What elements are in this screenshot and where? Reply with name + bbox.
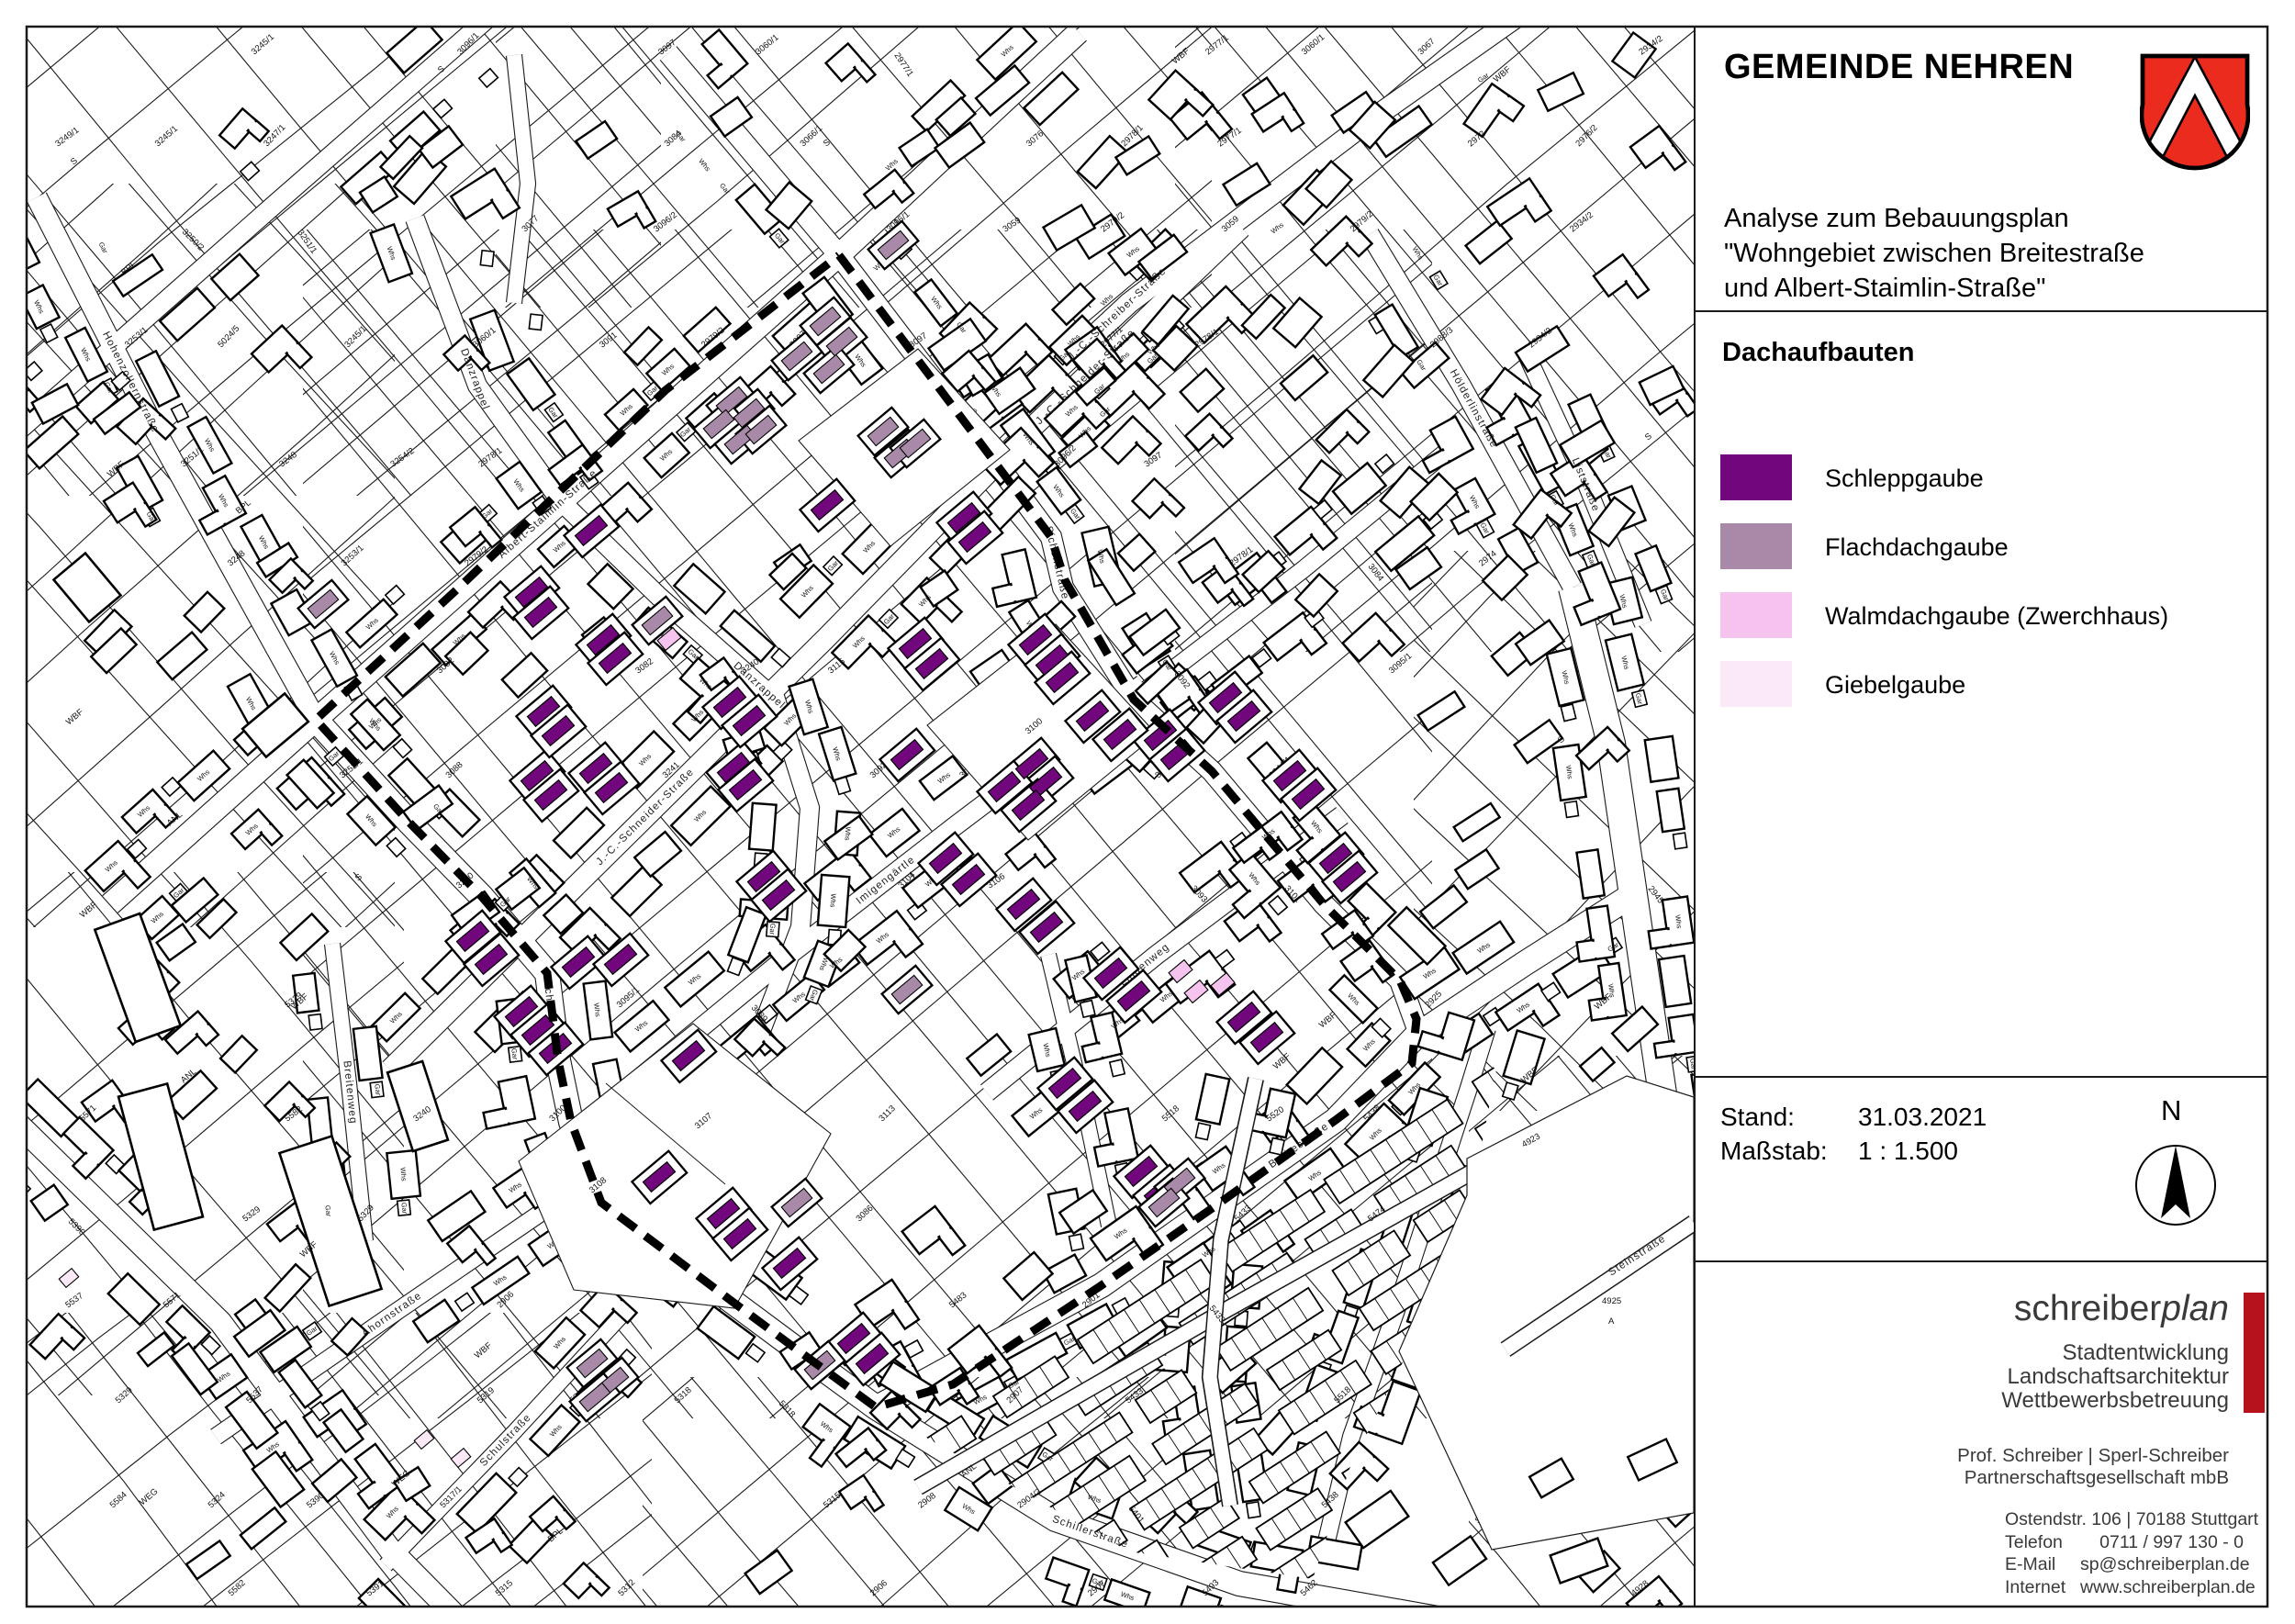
svg-text:Whs: Whs <box>828 893 837 908</box>
svg-text:3245/1: 3245/1 <box>342 324 368 350</box>
svg-text:Whs: Whs <box>398 1167 409 1182</box>
svg-text:Gar: Gar <box>768 923 778 935</box>
svg-text:3245/1: 3245/1 <box>153 124 180 149</box>
svg-text:Gar: Gar <box>373 1083 383 1096</box>
svg-text:3095/1: 3095/1 <box>615 985 642 1010</box>
svg-text:A: A <box>1608 1316 1615 1327</box>
svg-text:S: S <box>822 138 833 150</box>
svg-text:3113: 3113 <box>877 1103 897 1124</box>
svg-text:3059: 3059 <box>1002 216 1024 235</box>
svg-text:Gar: Gar <box>97 241 110 255</box>
svg-text:5312: 5312 <box>616 1577 637 1598</box>
svg-text:WBF: WBF <box>1271 1051 1293 1071</box>
svg-text:3250/2: 3250/2 <box>180 227 206 252</box>
svg-text:3067: 3067 <box>1416 37 1438 57</box>
svg-text:Whs: Whs <box>1270 220 1286 235</box>
svg-text:3091: 3091 <box>598 330 619 351</box>
svg-text:3093: 3093 <box>1189 884 1209 905</box>
svg-text:WBF: WBF <box>64 707 85 727</box>
svg-text:S: S <box>1556 734 1567 746</box>
svg-text:Whs: Whs <box>592 1002 602 1017</box>
svg-text:2974: 2974 <box>1477 549 1498 569</box>
svg-text:5584: 5584 <box>108 1490 129 1510</box>
svg-text:3253/1: 3253/1 <box>340 543 366 569</box>
svg-text:5329: 5329 <box>241 1204 263 1224</box>
svg-text:2978/1: 2978/1 <box>476 445 504 469</box>
svg-text:S: S <box>69 156 80 168</box>
svg-text:5582: 5582 <box>227 1578 248 1598</box>
svg-text:Whs: Whs <box>1719 1241 1729 1256</box>
svg-text:5315: 5315 <box>494 1578 515 1598</box>
svg-text:3088: 3088 <box>444 760 465 780</box>
svg-text:Whs: Whs <box>1411 245 1426 262</box>
svg-text:2977/1: 2977/1 <box>1203 33 1231 58</box>
svg-text:5024/5: 5024/5 <box>216 324 241 351</box>
svg-text:WBF: WBF <box>1317 1010 1338 1030</box>
svg-text:5318: 5318 <box>777 1399 797 1420</box>
svg-text:3251/1: 3251/1 <box>296 228 319 255</box>
svg-text:Whs: Whs <box>697 157 712 173</box>
svg-text:WBF: WBF <box>78 900 99 920</box>
svg-text:4925: 4925 <box>1602 1296 1621 1306</box>
svg-text:Gar: Gar <box>1476 71 1491 84</box>
svg-text:3254/2: 3254/2 <box>388 446 416 470</box>
svg-text:Gar: Gar <box>323 1204 332 1217</box>
svg-text:Ahornstraße: Ahornstraße <box>360 1290 424 1338</box>
svg-text:WBF: WBF <box>473 1340 494 1361</box>
svg-text:3084: 3084 <box>1366 562 1386 583</box>
svg-text:3245/1: 3245/1 <box>250 32 276 57</box>
svg-text:Schulstraße: Schulstraße <box>478 1412 533 1469</box>
svg-text:Gar: Gar <box>509 1047 520 1060</box>
svg-text:3096/2: 3096/2 <box>652 210 679 235</box>
svg-text:Gar: Gar <box>399 1202 409 1215</box>
svg-text:5537: 5537 <box>63 1291 85 1310</box>
svg-text:Whs: Whs <box>11 241 25 257</box>
svg-text:2908: 2908 <box>916 1491 938 1511</box>
svg-text:WBF: WBF <box>1492 64 1513 84</box>
svg-text:3060/1: 3060/1 <box>754 32 781 57</box>
svg-text:WBF: WBF <box>1170 46 1192 66</box>
svg-text:3060/1: 3060/1 <box>1300 32 1327 57</box>
svg-text:2977/1: 2977/1 <box>892 51 915 79</box>
svg-text:3249/1: 3249/1 <box>53 125 81 149</box>
svg-text:5324: 5324 <box>207 1490 228 1510</box>
svg-text:Whs: Whs <box>884 157 900 173</box>
svg-text:S: S <box>1643 431 1654 443</box>
svg-text:Gar: Gar <box>718 182 732 196</box>
svg-text:Whs: Whs <box>843 826 852 841</box>
svg-text:2906: 2906 <box>868 1578 890 1598</box>
svg-text:WEG: WEG <box>138 1486 160 1507</box>
svg-text:5329: 5329 <box>114 1385 135 1406</box>
svg-text:5318: 5318 <box>673 1385 694 1406</box>
